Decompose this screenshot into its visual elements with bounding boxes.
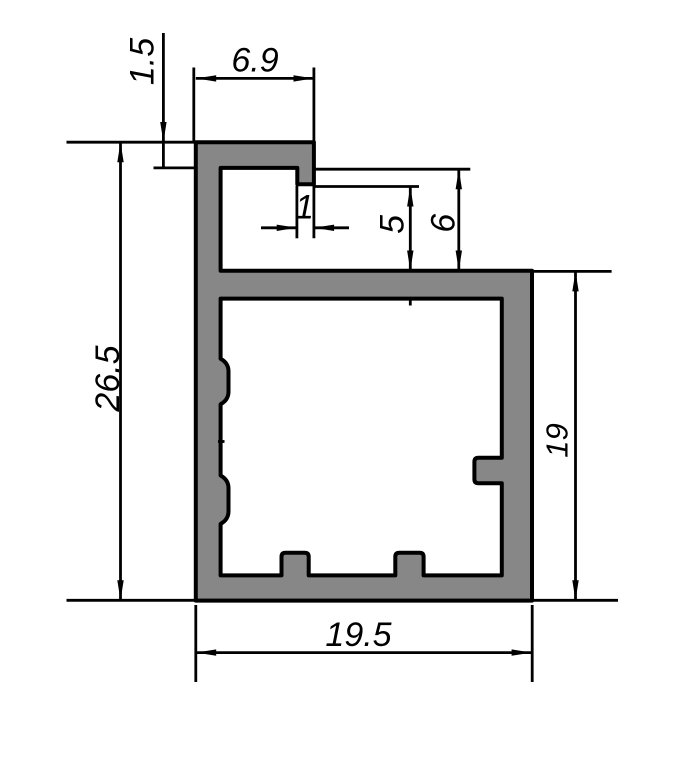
svg-text:19.5: 19.5 (325, 616, 391, 654)
svg-text:6.9: 6.9 (231, 42, 278, 80)
svg-text:1.5: 1.5 (124, 38, 162, 85)
svg-text:6: 6 (425, 214, 463, 233)
svg-text:5: 5 (374, 215, 412, 234)
svg-text:1: 1 (295, 189, 314, 227)
svg-text:19: 19 (540, 423, 575, 457)
svg-text:26.5: 26.5 (89, 345, 127, 412)
